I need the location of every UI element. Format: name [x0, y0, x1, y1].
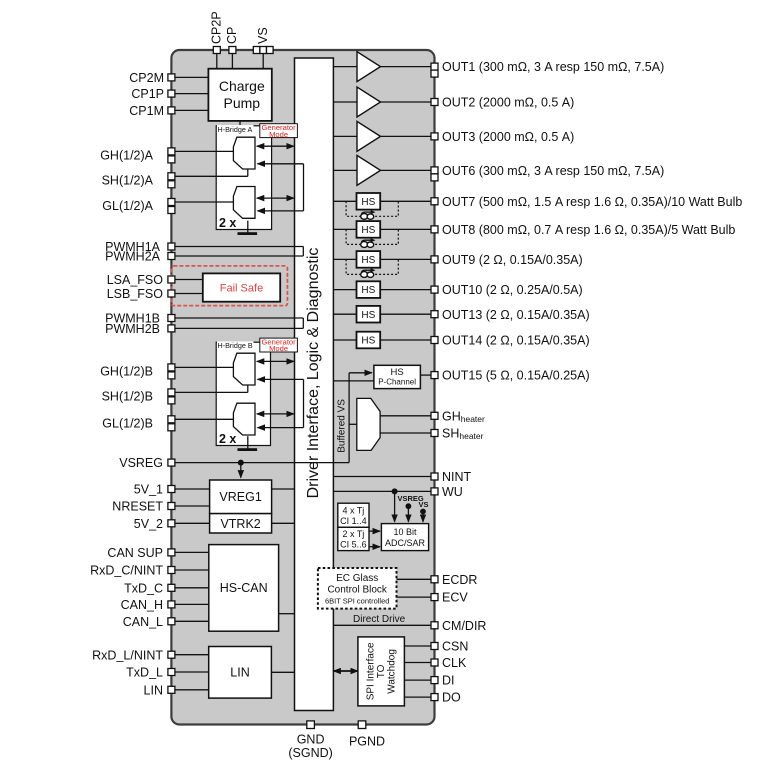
svg-text:ECV: ECV: [442, 591, 468, 605]
svg-text:Control Block: Control Block: [327, 585, 387, 596]
svg-text:VREG1: VREG1: [219, 490, 261, 504]
svg-text:Mode: Mode: [269, 130, 288, 139]
svg-text:OUT15 (5 Ω, 0.15A/0.25A): OUT15 (5 Ω, 0.15A/0.25A): [442, 369, 590, 383]
svg-text:TxD_L: TxD_L: [126, 666, 163, 680]
svg-text:CP1M: CP1M: [129, 104, 164, 118]
svg-text:GHheater: GHheater: [442, 409, 485, 424]
svg-text:HS: HS: [361, 285, 375, 296]
svg-text:CP: CP: [225, 27, 239, 44]
svg-text:P-Channel: P-Channel: [378, 378, 416, 387]
svg-text:OUT9 (2 Ω, 0.15A/0.35A): OUT9 (2 Ω, 0.15A/0.35A): [442, 253, 583, 267]
svg-text:(SGND): (SGND): [288, 746, 332, 760]
svg-text:CLK: CLK: [442, 656, 467, 670]
svg-text:OUT10 (2 Ω, 0.25A/0.5A): OUT10 (2 Ω, 0.25A/0.5A): [442, 283, 583, 297]
svg-text:Buffered VS: Buffered VS: [337, 399, 348, 453]
svg-text:CM/DIR: CM/DIR: [442, 619, 486, 633]
svg-text:NRESET: NRESET: [112, 500, 163, 514]
svg-text:SH(1/2)A: SH(1/2)A: [102, 174, 154, 188]
svg-text:GND: GND: [297, 733, 325, 747]
svg-text:OUT13 (2 Ω, 0.15A/0.35A): OUT13 (2 Ω, 0.15A/0.35A): [442, 308, 590, 322]
svg-text:OUT6 (300 mΩ, 3 A resp 150 mΩ,: OUT6 (300 mΩ, 3 A resp 150 mΩ, 7.5A): [442, 164, 664, 178]
svg-text:ECDR: ECDR: [442, 573, 477, 587]
svg-text:LIN: LIN: [144, 683, 163, 697]
svg-text:PWMH2B: PWMH2B: [105, 322, 160, 336]
svg-text:NINT: NINT: [442, 470, 472, 484]
svg-text:VS: VS: [256, 27, 270, 44]
svg-text:Mode: Mode: [269, 344, 288, 353]
svg-text:2 x Tj: 2 x Tj: [342, 529, 364, 539]
svg-text:6BIT SPI controlled: 6BIT SPI controlled: [325, 597, 389, 606]
svg-text:10 Bit: 10 Bit: [393, 527, 417, 537]
svg-text:SH(1/2)B: SH(1/2)B: [102, 390, 153, 404]
svg-text:Driver Interface, Logic & Diag: Driver Interface, Logic & Diagnostic: [305, 248, 322, 499]
svg-text:DI: DI: [442, 674, 455, 688]
svg-text:5V_1: 5V_1: [134, 483, 163, 497]
svg-text:CI 1..4: CI 1..4: [340, 516, 367, 526]
svg-text:WU: WU: [442, 485, 463, 499]
svg-text:DO: DO: [442, 691, 461, 705]
svg-text:VS: VS: [419, 500, 429, 509]
svg-text:CI 5..6: CI 5..6: [340, 540, 367, 550]
svg-text:CP2M: CP2M: [129, 71, 164, 85]
svg-text:Charge: Charge: [219, 78, 265, 94]
svg-text:CP1P: CP1P: [131, 87, 164, 101]
svg-text:SHheater: SHheater: [442, 427, 484, 442]
svg-text:2 x: 2 x: [219, 432, 236, 446]
svg-text:4 x Tj: 4 x Tj: [342, 506, 364, 516]
svg-text:CP2P: CP2P: [209, 11, 223, 44]
svg-text:Pump: Pump: [224, 95, 261, 111]
svg-text:OUT7 (500 mΩ, 1.5 A resp 1.6 Ω: OUT7 (500 mΩ, 1.5 A resp 1.6 Ω, 0.35A)/1…: [442, 195, 742, 209]
svg-text:H-Bridge A: H-Bridge A: [218, 125, 253, 134]
svg-text:LSA_FSO: LSA_FSO: [107, 273, 164, 287]
svg-text:Watchdog: Watchdog: [386, 649, 397, 694]
svg-text:CAN SUP: CAN SUP: [107, 546, 163, 560]
svg-text:OUT2 (2000 mΩ, 0.5 A): OUT2 (2000 mΩ, 0.5 A): [442, 96, 574, 110]
svg-text:OUT8 (800 mΩ, 0.7 A resp 1.6 Ω: OUT8 (800 mΩ, 0.7 A resp 1.6 Ω, 0.35A)/5…: [442, 223, 735, 237]
svg-text:HS: HS: [361, 225, 375, 236]
svg-text:Fail Safe: Fail Safe: [220, 283, 263, 295]
svg-text:HS: HS: [390, 367, 403, 378]
svg-text:GH(1/2)B: GH(1/2)B: [100, 365, 153, 379]
svg-text:LIN: LIN: [230, 666, 249, 680]
svg-text:OUT3 (2000 mΩ, 0.5 A): OUT3 (2000 mΩ, 0.5 A): [442, 130, 574, 144]
svg-text:LSB_FSO: LSB_FSO: [107, 287, 164, 301]
svg-text:OUT14 (2 Ω, 0.15A/0.35A): OUT14 (2 Ω, 0.15A/0.35A): [442, 334, 590, 348]
svg-text:GL(1/2)A: GL(1/2)A: [102, 199, 153, 213]
svg-text:CSN: CSN: [442, 640, 468, 654]
svg-text:H-Bridge B: H-Bridge B: [218, 341, 253, 350]
svg-text:2 x: 2 x: [219, 216, 236, 230]
svg-text:VSREG: VSREG: [119, 456, 163, 470]
svg-text:EC Glass: EC Glass: [336, 573, 378, 584]
svg-text:RxD_L/NINT: RxD_L/NINT: [92, 648, 163, 662]
svg-text:HS: HS: [361, 255, 375, 266]
svg-text:Direct Drive: Direct Drive: [353, 614, 406, 625]
svg-text:PWMH2A: PWMH2A: [105, 250, 161, 264]
svg-text:HS-CAN: HS-CAN: [220, 581, 268, 595]
svg-text:GH(1/2)A: GH(1/2)A: [100, 149, 153, 163]
svg-text:OUT1 (300 mΩ, 3 A resp 150 mΩ,: OUT1 (300 mΩ, 3 A resp 150 mΩ, 7.5A): [442, 60, 664, 74]
svg-text:GL(1/2)B: GL(1/2)B: [102, 417, 153, 431]
svg-text:SPI Interface: SPI Interface: [365, 642, 376, 700]
svg-text:ADC/SAR: ADC/SAR: [385, 538, 426, 548]
svg-text:TO: TO: [376, 664, 387, 678]
svg-text:HS: HS: [361, 310, 375, 321]
svg-text:CAN_H: CAN_H: [121, 598, 163, 612]
svg-text:PGND: PGND: [349, 735, 385, 749]
svg-text:5V_2: 5V_2: [134, 517, 163, 531]
svg-text:VTRK2: VTRK2: [220, 517, 260, 531]
svg-text:CAN_L: CAN_L: [123, 615, 163, 629]
svg-text:HS: HS: [361, 197, 375, 208]
svg-text:TxD_C: TxD_C: [124, 581, 163, 595]
svg-text:HS: HS: [361, 336, 375, 347]
svg-text:RxD_C/NINT: RxD_C/NINT: [90, 564, 163, 578]
